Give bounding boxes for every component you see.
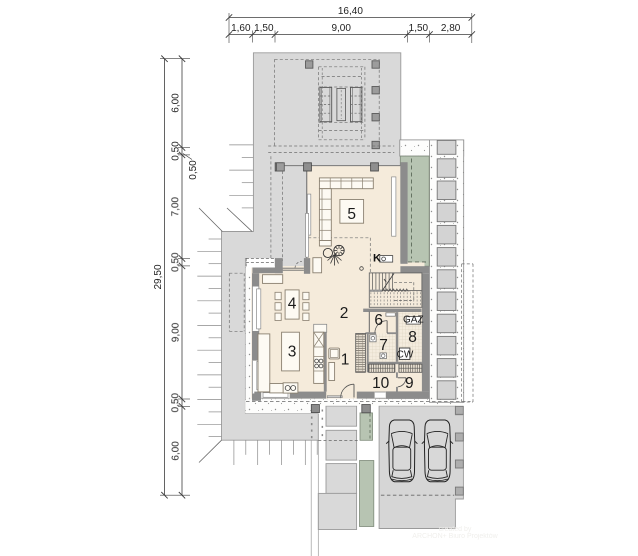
- svg-text:7,00: 7,00: [171, 197, 182, 217]
- svg-text:0,50: 0,50: [171, 393, 182, 413]
- svg-text:0,50: 0,50: [188, 160, 199, 180]
- svg-text:0,50: 0,50: [171, 141, 182, 161]
- svg-text:9,00: 9,00: [331, 23, 351, 34]
- svg-text:4: 4: [288, 296, 297, 313]
- svg-text:1,60: 1,60: [231, 23, 251, 34]
- svg-text:16,40: 16,40: [338, 6, 363, 17]
- svg-text:1,50: 1,50: [254, 23, 274, 34]
- svg-text:3: 3: [288, 344, 297, 361]
- svg-text:8: 8: [408, 329, 417, 346]
- svg-text:10: 10: [372, 375, 390, 392]
- svg-text:K: K: [373, 252, 381, 264]
- svg-text:GAZ: GAZ: [403, 315, 424, 326]
- svg-text:7: 7: [379, 337, 388, 354]
- svg-text:1: 1: [341, 352, 350, 369]
- svg-text:9: 9: [405, 375, 414, 392]
- svg-text:6: 6: [374, 312, 383, 329]
- svg-text:0,50: 0,50: [171, 252, 182, 272]
- svg-text:5: 5: [347, 206, 356, 223]
- svg-text:29,50: 29,50: [153, 264, 164, 289]
- svg-text:2: 2: [340, 305, 349, 322]
- svg-text:1,50: 1,50: [409, 23, 429, 34]
- svg-text:CW: CW: [397, 349, 414, 360]
- svg-text:created by: created by: [439, 526, 472, 533]
- svg-text:2,80: 2,80: [441, 23, 461, 34]
- svg-text:9,00: 9,00: [171, 322, 182, 342]
- svg-text:6,00: 6,00: [171, 93, 182, 113]
- svg-text:6,00: 6,00: [171, 441, 182, 461]
- svg-text:ARCHON+ Biuro Projektów: ARCHON+ Biuro Projektów: [412, 533, 498, 540]
